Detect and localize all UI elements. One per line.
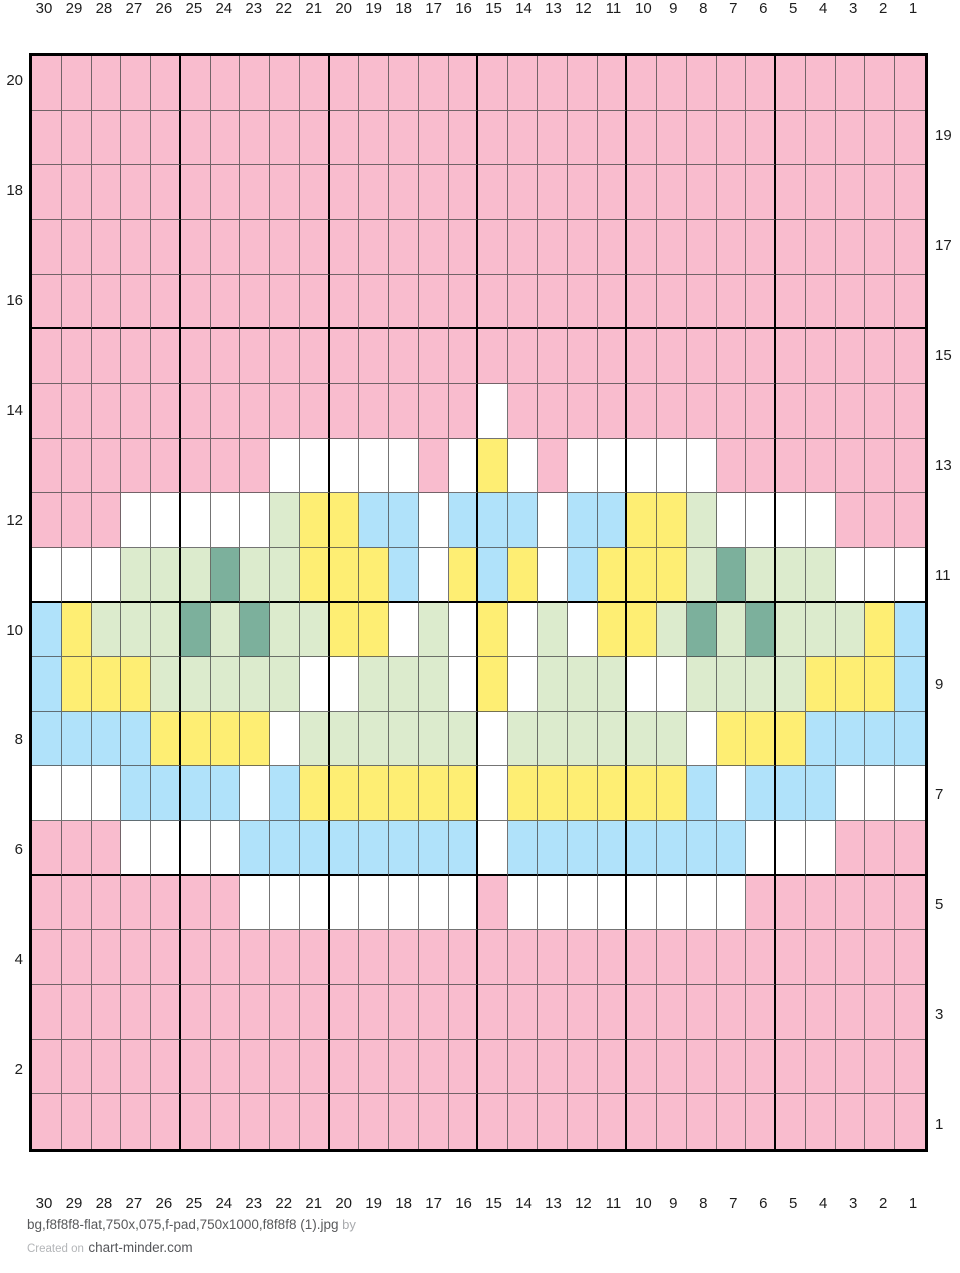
grid-cell-pink [151, 56, 181, 111]
grid-cell-pink [330, 329, 360, 384]
grid-cell-pink [776, 439, 806, 494]
row-label-left: 16 [0, 273, 26, 328]
grid-cell-pink [478, 329, 508, 384]
grid-cell-white [568, 439, 598, 494]
grid-cell-pink [300, 220, 330, 275]
grid-cell-pink [300, 384, 330, 439]
grid-cell-pink [746, 275, 776, 330]
grid-cell-pink [300, 56, 330, 111]
grid-cell-pink [240, 985, 270, 1040]
grid-cell-pink [627, 985, 657, 1040]
grid-cell-white [270, 876, 300, 931]
grid-cell-pink [32, 384, 62, 439]
grid-cell-yellow [300, 548, 330, 603]
grid-cell-yellow [389, 766, 419, 821]
grid-cell-white [806, 493, 836, 548]
grid-cell-pink [687, 111, 717, 166]
grid-cell-pink [92, 1040, 122, 1095]
column-label-bottom: 14 [509, 1196, 539, 1212]
grid-cell-pink [508, 985, 538, 1040]
row-label-left: 18 [0, 163, 26, 218]
grid-cell-light-blue [359, 821, 389, 876]
grid-cell-pink [211, 329, 241, 384]
grid-cell-light-green [776, 657, 806, 712]
grid-cell-pink [240, 439, 270, 494]
grid-cell-pink [270, 1040, 300, 1095]
grid-cell-pink [538, 165, 568, 220]
grid-cell-light-blue [746, 766, 776, 821]
grid-cell-white [717, 766, 747, 821]
grid-cell-yellow [359, 548, 389, 603]
grid-cell-pink [478, 985, 508, 1040]
row-label-left: 8 [0, 712, 26, 767]
grid-cell-pink [449, 384, 479, 439]
grid-cell-pink [419, 985, 449, 1040]
grid-cell-pink [598, 111, 628, 166]
grid-cell-white [895, 766, 925, 821]
grid-cell-pink [865, 1094, 895, 1149]
row-label-right: 1 [932, 1097, 958, 1152]
grid-cell-pink [836, 493, 866, 548]
grid-cell-pink [270, 930, 300, 985]
grid-cell-pink [836, 1040, 866, 1095]
grid-cell-pink [419, 384, 449, 439]
grid-cell-light-blue [895, 603, 925, 658]
grid-cell-pink [865, 985, 895, 1040]
grid-cell-light-blue [449, 821, 479, 876]
grid-cell-pink [895, 493, 925, 548]
grid-cell-yellow [776, 712, 806, 767]
column-label-top: 19 [359, 1, 389, 17]
grid-cell-pink [449, 329, 479, 384]
grid-cell-pink [32, 111, 62, 166]
grid-cell-yellow [717, 712, 747, 767]
column-label-top: 28 [89, 1, 119, 17]
grid-cell-pink [627, 1094, 657, 1149]
grid-cell-pink [865, 439, 895, 494]
grid-cell-pink [598, 384, 628, 439]
grid-cell-pink [598, 1040, 628, 1095]
grid-cell-white [657, 876, 687, 931]
grid-cell-pink [717, 384, 747, 439]
grid-cell-white [359, 439, 389, 494]
grid-cell-yellow [330, 603, 360, 658]
grid-cell-pink [32, 275, 62, 330]
grid-cell-pink [359, 165, 389, 220]
grid-cell-pink [389, 930, 419, 985]
grid-cell-pink [211, 876, 241, 931]
created-on-label: Created on [27, 1243, 84, 1255]
grid-cell-pink [776, 985, 806, 1040]
column-label-top: 20 [329, 1, 359, 17]
column-label-bottom: 22 [269, 1196, 299, 1212]
grid-cell-pink [746, 165, 776, 220]
column-label-top: 16 [449, 1, 479, 17]
grid-cell-pink [389, 384, 419, 439]
grid-cell-white [657, 657, 687, 712]
row-label-left [0, 767, 26, 822]
row-label-right [932, 1042, 958, 1097]
grid-cell-yellow [508, 548, 538, 603]
grid-cell-yellow [330, 766, 360, 821]
grid-cell-yellow [181, 712, 211, 767]
column-label-top: 11 [598, 1, 628, 17]
grid-cell-yellow [330, 548, 360, 603]
column-label-top: 29 [59, 1, 89, 17]
grid-cell-pink [836, 56, 866, 111]
grid-cell-pink [151, 439, 181, 494]
grid-cell-yellow [419, 766, 449, 821]
grid-cell-pink [181, 165, 211, 220]
grid-cell-pink [865, 1040, 895, 1095]
grid-cell-pink [270, 384, 300, 439]
grid-cell-pink [895, 930, 925, 985]
grid-cell-light-green [538, 603, 568, 658]
grid-cell-white [121, 821, 151, 876]
grid-cell-pink [657, 329, 687, 384]
grid-cell-pink [717, 56, 747, 111]
grid-cell-pink [478, 930, 508, 985]
grid-cell-white [865, 548, 895, 603]
grid-cell-light-blue [211, 766, 241, 821]
grid-cell-pink [895, 220, 925, 275]
grid-cell-pink [657, 56, 687, 111]
grid-cell-light-green [598, 657, 628, 712]
grid-cell-pink [62, 985, 92, 1040]
grid-cell-pink [240, 56, 270, 111]
column-label-bottom: 7 [718, 1196, 748, 1212]
grid-cell-white [32, 548, 62, 603]
grid-cell-light-green [270, 493, 300, 548]
row-label-left [0, 1097, 26, 1152]
grid-cell-white [449, 876, 479, 931]
grid-cell-pink [627, 329, 657, 384]
grid-cell-pink [538, 985, 568, 1040]
grid-cell-white [389, 876, 419, 931]
row-label-left: 20 [0, 53, 26, 108]
grid-cell-pink [657, 930, 687, 985]
column-label-top: 8 [688, 1, 718, 17]
grid-cell-light-green [687, 493, 717, 548]
grid-cell-pink [359, 111, 389, 166]
grid-cell-pink [538, 329, 568, 384]
grid-cell-pink [568, 111, 598, 166]
column-label-bottom: 20 [329, 1196, 359, 1212]
grid-cell-pink [895, 56, 925, 111]
grid-cell-light-blue [806, 712, 836, 767]
grid-cell-light-green [359, 712, 389, 767]
grid-cell-pink [717, 930, 747, 985]
grid-cell-light-blue [300, 821, 330, 876]
grid-cell-light-blue [32, 603, 62, 658]
grid-cell-light-blue [359, 493, 389, 548]
grid-cell-white [181, 821, 211, 876]
grid-cell-pink [776, 1040, 806, 1095]
grid-cell-light-green [92, 603, 122, 658]
grid-cell-light-blue [657, 821, 687, 876]
grid-cell-pink [449, 1094, 479, 1149]
grid-cell-pink [151, 165, 181, 220]
grid-cell-pink [240, 111, 270, 166]
grid-cell-pink [717, 439, 747, 494]
grid-cell-light-blue [181, 766, 211, 821]
grid-cell-pink [806, 275, 836, 330]
grid-cell-pink [330, 111, 360, 166]
grid-cell-pink [449, 165, 479, 220]
column-label-top: 22 [269, 1, 299, 17]
grid-cell-pink [657, 1094, 687, 1149]
grid-cell-pink [121, 384, 151, 439]
column-label-top: 30 [29, 1, 59, 17]
grid-cell-yellow [92, 657, 122, 712]
grid-cell-pink [181, 930, 211, 985]
grid-cell-white [478, 766, 508, 821]
grid-cell-pink [449, 985, 479, 1040]
grid-cell-pink [92, 1094, 122, 1149]
grid-cell-pink [62, 56, 92, 111]
row-label-right [932, 273, 958, 328]
grid-cell-pink [419, 111, 449, 166]
grid-cell-pink [62, 493, 92, 548]
grid-cell-pink [211, 1040, 241, 1095]
grid-cell-light-blue [121, 766, 151, 821]
row-label-right [932, 932, 958, 987]
grid-cell-white [151, 821, 181, 876]
grid-cell-white [330, 657, 360, 712]
row-label-right [932, 822, 958, 877]
grid-cell-yellow [598, 548, 628, 603]
grid-cell-teal-green [746, 603, 776, 658]
grid-cell-teal-green [240, 603, 270, 658]
chart-filename: bg,f8f8f8-flat,750x,075,f-pad,750x1000,f… [27, 1217, 338, 1232]
grid-cell-light-green [211, 603, 241, 658]
grid-cell-yellow [478, 603, 508, 658]
grid-cell-pink [151, 111, 181, 166]
grid-cell-pink [478, 876, 508, 931]
grid-cell-light-green [121, 548, 151, 603]
grid-cell-light-blue [627, 821, 657, 876]
column-label-top: 17 [419, 1, 449, 17]
grid-cell-pink [806, 111, 836, 166]
grid-cell-pink [627, 275, 657, 330]
grid-cell-pink [687, 329, 717, 384]
grid-cell-white [865, 766, 895, 821]
grid-cell-light-green [359, 657, 389, 712]
column-label-top: 3 [838, 1, 868, 17]
grid-cell-white [419, 548, 449, 603]
grid-cell-pink [806, 985, 836, 1040]
grid-cell-white [478, 712, 508, 767]
row-label-left [0, 548, 26, 603]
grid-cell-white [657, 439, 687, 494]
grid-cell-white [836, 766, 866, 821]
grid-cell-light-green [330, 712, 360, 767]
grid-cell-white [836, 548, 866, 603]
grid-cell-light-green [419, 712, 449, 767]
grid-cell-pink [836, 1094, 866, 1149]
grid-cell-light-green [211, 657, 241, 712]
column-label-top: 12 [568, 1, 598, 17]
grid-cell-pink [598, 275, 628, 330]
row-label-left [0, 438, 26, 493]
grid-cell-pink [687, 1040, 717, 1095]
chart-attribution: bg,f8f8f8-flat,750x,075,f-pad,750x1000,f… [27, 1213, 356, 1259]
column-label-bottom: 25 [179, 1196, 209, 1212]
column-label-bottom: 18 [389, 1196, 419, 1212]
grid-cell-pink [776, 1094, 806, 1149]
grid-cell-yellow [657, 548, 687, 603]
grid-cell-light-blue [240, 821, 270, 876]
grid-cell-pink [359, 220, 389, 275]
grid-cell-pink [151, 985, 181, 1040]
grid-cell-pink [389, 329, 419, 384]
grid-cell-yellow [300, 493, 330, 548]
grid-cell-light-blue [776, 766, 806, 821]
grid-cell-pink [657, 985, 687, 1040]
grid-cell-pink [538, 1094, 568, 1149]
grid-cell-teal-green [211, 548, 241, 603]
grid-cell-pink [211, 985, 241, 1040]
grid-cell-pink [419, 930, 449, 985]
column-label-top: 24 [209, 1, 239, 17]
grid-cell-pink [598, 1094, 628, 1149]
grid-cell-pink [359, 1040, 389, 1095]
row-label-right: 5 [932, 877, 958, 932]
grid-cell-pink [508, 1040, 538, 1095]
grid-cell-pink [32, 985, 62, 1040]
grid-cell-pink [836, 275, 866, 330]
grid-cell-pink [717, 275, 747, 330]
grid-cell-pink [538, 111, 568, 166]
grid-cell-white [687, 712, 717, 767]
grid-cell-pink [836, 384, 866, 439]
grid-cell-pink [717, 165, 747, 220]
by-label-text: by [342, 1217, 356, 1232]
grid-cell-pink [806, 1040, 836, 1095]
row-label-right: 15 [932, 328, 958, 383]
grid-cell-light-blue [151, 766, 181, 821]
grid-cell-light-green [776, 548, 806, 603]
grid-cell-white [419, 876, 449, 931]
grid-cell-light-green [746, 657, 776, 712]
grid-cell-yellow [627, 603, 657, 658]
row-label-left: 12 [0, 493, 26, 548]
grid-cell-pink [806, 439, 836, 494]
grid-cell-pink [895, 876, 925, 931]
grid-cell-white [627, 657, 657, 712]
grid-cell-white [330, 876, 360, 931]
grid-cell-pink [211, 384, 241, 439]
column-labels-top: 3029282726252423222120191817161514131211… [29, 1, 928, 17]
grid-cell-pink [151, 1040, 181, 1095]
grid-cell-pink [806, 56, 836, 111]
grid-cell-pink [657, 384, 687, 439]
grid-cell-pink [538, 220, 568, 275]
grid-cell-yellow [657, 766, 687, 821]
grid-cell-white [389, 439, 419, 494]
row-label-right [932, 712, 958, 767]
grid-cell-pink [151, 275, 181, 330]
grid-cell-pink [627, 1040, 657, 1095]
grid-cell-pink [330, 384, 360, 439]
grid-cell-pink [419, 275, 449, 330]
grid-cell-pink [776, 56, 806, 111]
grid-cell-pink [449, 220, 479, 275]
grid-cell-white [687, 439, 717, 494]
grid-cell-yellow [865, 657, 895, 712]
grid-cell-pink [806, 165, 836, 220]
grid-cell-light-green [598, 712, 628, 767]
chart-minder-link[interactable]: chart-minder.com [88, 1240, 192, 1255]
grid-cell-teal-green [181, 603, 211, 658]
grid-cell-pink [717, 1094, 747, 1149]
grid-cell-pink [598, 985, 628, 1040]
grid-cell-pink [121, 985, 151, 1040]
grid-cell-pink [121, 165, 151, 220]
grid-cell-white [121, 493, 151, 548]
grid-cell-yellow [865, 603, 895, 658]
grid-cell-white [508, 439, 538, 494]
column-label-bottom: 28 [89, 1196, 119, 1212]
grid-cell-pink [746, 930, 776, 985]
grid-cell-light-green [151, 603, 181, 658]
grid-cell-pink [657, 220, 687, 275]
column-label-bottom: 23 [239, 1196, 269, 1212]
grid-cell-pink [865, 876, 895, 931]
grid-cell-white [508, 657, 538, 712]
grid-cell-pink [478, 111, 508, 166]
grid-cell-white [240, 876, 270, 931]
row-labels-right: 191715131197531 [932, 53, 958, 1152]
grid-cell-pink [836, 985, 866, 1040]
grid-cell-pink [300, 165, 330, 220]
grid-cell-light-blue [895, 657, 925, 712]
grid-cell-yellow [62, 603, 92, 658]
grid-cell-white [687, 876, 717, 931]
grid-cell-light-green [449, 712, 479, 767]
grid-cell-light-green [687, 657, 717, 712]
grid-cell-pink [478, 165, 508, 220]
grid-cell-light-blue [568, 493, 598, 548]
grid-cell-pink [121, 111, 151, 166]
grid-cell-white [151, 493, 181, 548]
grid-cell-white [359, 876, 389, 931]
grid-cell-pink [330, 165, 360, 220]
grid-cell-pink [300, 1040, 330, 1095]
grid-cell-pink [151, 329, 181, 384]
grid-cell-pink [865, 111, 895, 166]
grid-cell-light-blue [270, 766, 300, 821]
grid-cell-pink [865, 384, 895, 439]
column-label-top: 26 [149, 1, 179, 17]
grid-cell-pink [92, 493, 122, 548]
grid-cell-white [330, 439, 360, 494]
grid-cell-pink [746, 1094, 776, 1149]
grid-cell-pink [211, 56, 241, 111]
grid-cell-light-green [806, 548, 836, 603]
grid-cell-yellow [478, 657, 508, 712]
grid-cell-pink [865, 56, 895, 111]
grid-cell-pink [568, 384, 598, 439]
grid-cell-white [508, 876, 538, 931]
grid-cell-pink [62, 165, 92, 220]
grid-cell-pink [746, 56, 776, 111]
grid-cell-light-green [419, 657, 449, 712]
grid-cell-pink [865, 821, 895, 876]
grid-cell-light-green [151, 548, 181, 603]
grid-cell-pink [270, 1094, 300, 1149]
grid-cell-pink [568, 275, 598, 330]
